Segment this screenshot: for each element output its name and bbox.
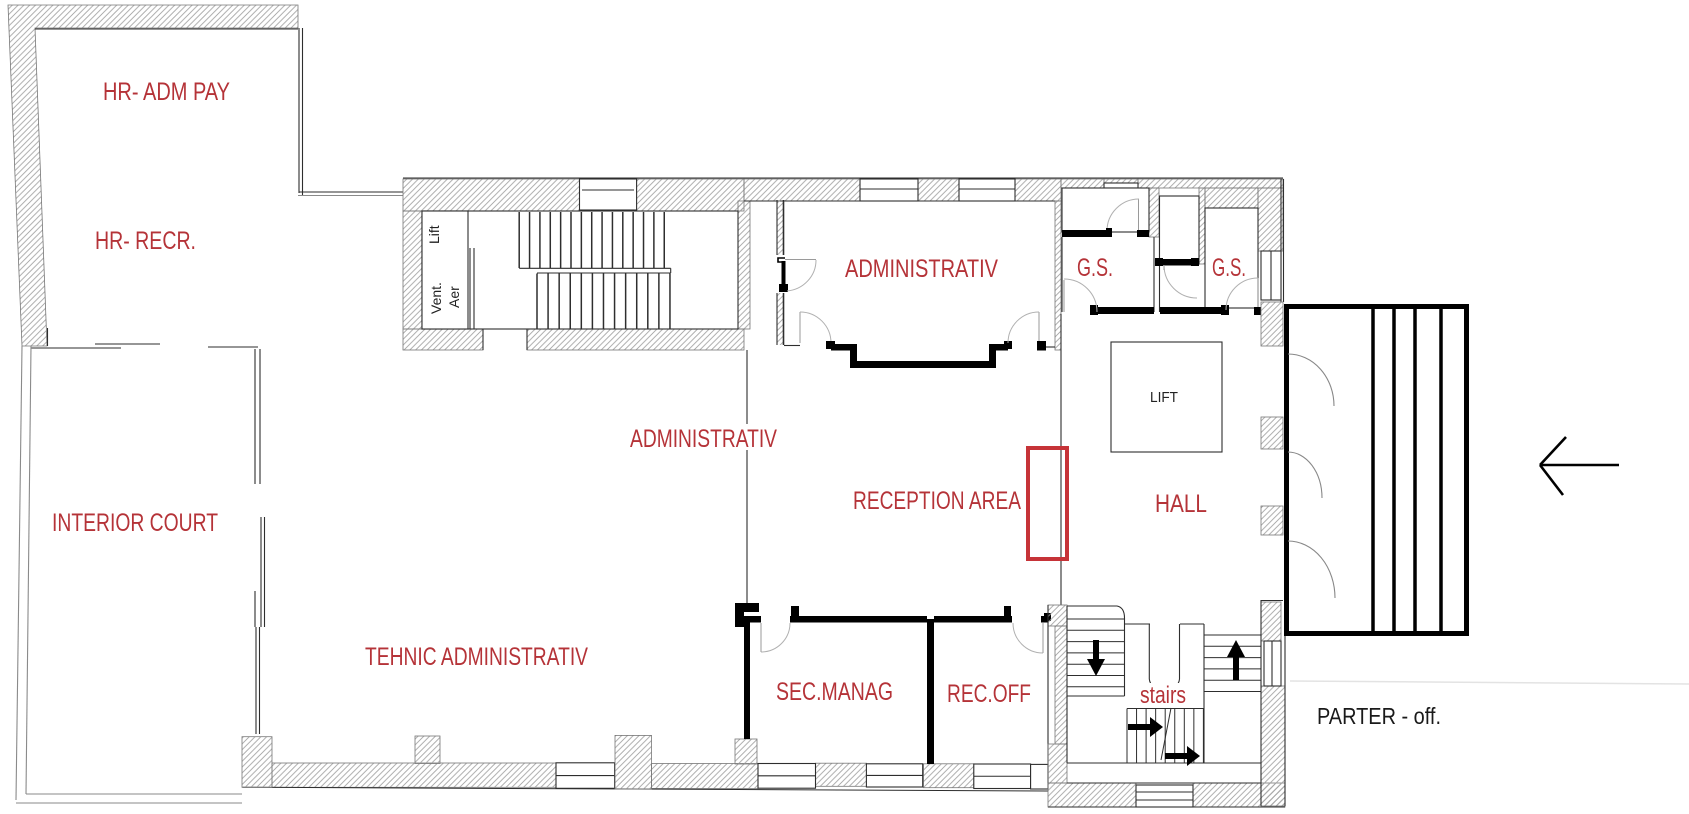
svg-text:LIFT: LIFT bbox=[1150, 389, 1178, 406]
svg-text:Vent.: Vent. bbox=[428, 282, 444, 314]
svg-text:TEHNIC ADMINISTRATIV: TEHNIC ADMINISTRATIV bbox=[365, 643, 588, 671]
svg-text:Aer: Aer bbox=[446, 286, 462, 308]
svg-text:HR- RECR.: HR- RECR. bbox=[95, 227, 196, 255]
svg-text:ADMINISTRATIV: ADMINISTRATIV bbox=[845, 255, 998, 283]
svg-text:HR- ADM PAY: HR- ADM PAY bbox=[103, 78, 230, 106]
svg-text:stairs: stairs bbox=[1140, 682, 1186, 709]
svg-text:SEC.MANAG: SEC.MANAG bbox=[776, 678, 893, 706]
svg-text:PARTER - off.: PARTER - off. bbox=[1317, 703, 1441, 729]
svg-text:Lift: Lift bbox=[426, 225, 442, 244]
svg-text:G.S.: G.S. bbox=[1077, 254, 1113, 282]
svg-text:HALL: HALL bbox=[1155, 490, 1207, 518]
svg-text:REC.OFF: REC.OFF bbox=[947, 680, 1031, 708]
svg-text:G.S.: G.S. bbox=[1212, 254, 1246, 282]
svg-text:INTERIOR COURT: INTERIOR COURT bbox=[52, 509, 218, 537]
svg-text:RECEPTION AREA: RECEPTION AREA bbox=[853, 487, 1021, 515]
svg-text:ADMINISTRATIV: ADMINISTRATIV bbox=[630, 425, 777, 453]
